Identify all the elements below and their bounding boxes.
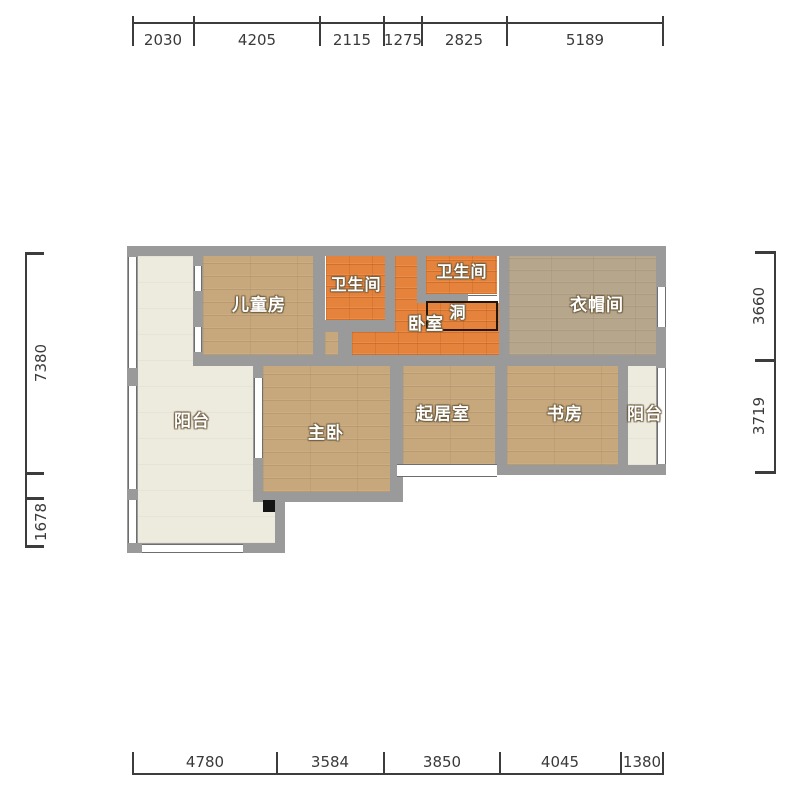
dim-bottom-line: [133, 773, 663, 775]
window-left-3: [128, 500, 137, 543]
label-balcony-right: 阳台: [627, 400, 663, 425]
dim-bottom-tick: [499, 752, 501, 775]
wall-bath1-right: [385, 256, 395, 332]
label-bedroom: 卧室: [408, 310, 444, 335]
window-cloakroom-right: [657, 287, 666, 327]
dim-top-value: 5189: [566, 31, 604, 49]
dim-top-line: [133, 22, 663, 24]
wall-cloakroom-left: [499, 246, 509, 355]
dim-right-value: 3719: [750, 397, 768, 435]
dim-top-tick: [132, 16, 134, 46]
column-marker: [263, 500, 275, 512]
dim-bottom-value: 4780: [186, 753, 224, 771]
floor-children-notch: [325, 332, 338, 355]
dim-bottom-tick: [276, 752, 278, 775]
dim-top-tick: [193, 16, 195, 46]
wall-notch: [338, 332, 352, 355]
label-cloakroom: 衣帽间: [570, 291, 624, 316]
window-master-balcony: [254, 378, 263, 458]
dim-bottom-value: 1380: [623, 753, 661, 771]
wall-top: [127, 246, 666, 256]
dim-bottom-value: 3584: [311, 753, 349, 771]
dim-left-tick: [25, 545, 44, 548]
window-children-2: [194, 327, 202, 352]
dim-top-value: 2115: [333, 31, 371, 49]
dim-right-tick: [755, 471, 776, 474]
dim-right-line: [774, 252, 776, 473]
dim-right-tick: [755, 251, 776, 254]
dim-right-tick: [755, 359, 776, 362]
label-master-bedroom: 主卧: [308, 419, 344, 444]
dim-left-tick: [25, 252, 44, 255]
dim-top-tick: [319, 16, 321, 46]
dim-left-value: 7380: [32, 344, 50, 382]
dim-left-tick: [25, 497, 44, 500]
window-living-bottom: [397, 464, 497, 477]
label-children-room: 儿童房: [232, 291, 286, 316]
dim-left-value: 1678: [32, 503, 50, 541]
dim-top-value: 1275: [384, 31, 422, 49]
label-living-room: 起居室: [416, 400, 470, 425]
wall-children-right: [313, 256, 325, 355]
dim-bottom-tick: [620, 752, 622, 775]
dim-bottom-tick: [662, 752, 664, 775]
label-bath1: 卫生间: [330, 271, 381, 295]
dim-bottom-tick: [132, 752, 134, 775]
dim-right-value: 3660: [750, 287, 768, 325]
label-balcony-left: 阳台: [174, 407, 210, 432]
dim-bottom-value: 3850: [423, 753, 461, 771]
label-hole: 洞: [449, 299, 466, 323]
dim-top-tick: [662, 16, 664, 46]
label-study: 书房: [547, 400, 583, 425]
wall-master-bottom: [253, 492, 403, 502]
wall-living-study: [495, 355, 507, 475]
window-left-1: [128, 257, 137, 368]
dim-bottom-value: 4045: [541, 753, 579, 771]
dim-bottom-tick: [383, 752, 385, 775]
wall-master-right: [390, 355, 403, 502]
dim-top-value: 4205: [238, 31, 276, 49]
wall-mid-band: [193, 355, 666, 366]
floor-bedroom-bottom: [352, 331, 417, 355]
dim-top-value: 2030: [144, 31, 182, 49]
window-children-1: [194, 266, 202, 291]
floor-balcony-left-lower: [138, 502, 275, 543]
dim-left-line: [25, 253, 27, 547]
window-balcony-bottom: [142, 544, 243, 553]
dim-top-value: 2825: [445, 31, 483, 49]
dim-top-tick: [506, 16, 508, 46]
floor-plan-canvas: 儿童房 卫生间 卫生间 卧室 洞 衣帽间 阳台 主卧 起居室 书房 阳台 203…: [0, 0, 800, 800]
dim-left-tick: [25, 472, 44, 475]
window-left-2: [128, 386, 137, 489]
label-bath2: 卫生间: [436, 258, 487, 282]
